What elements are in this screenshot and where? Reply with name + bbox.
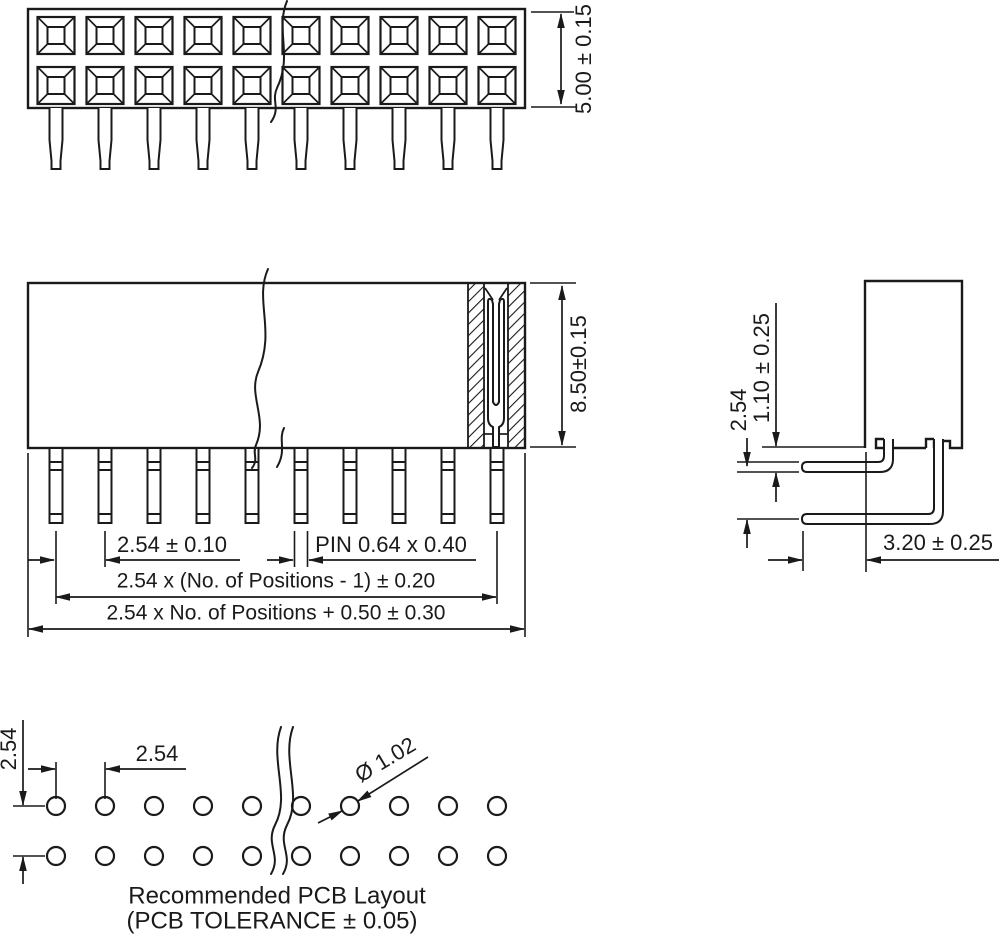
dim-tail-length-label: 3.20 ± 0.25: [883, 530, 993, 555]
dim-pin-size-label: PIN 0.64 x 0.40: [315, 532, 467, 557]
dim-pcb-col-pitch-label: 2.54: [136, 741, 179, 766]
dim-body-height-label: 5.00 ± 0.15: [571, 4, 596, 114]
side-view-dimensions: 2.54 1.10 ± 0.25 3.20 ± 0.25: [726, 303, 999, 572]
pcb-break-line-2: [283, 727, 293, 874]
side-view: 2.54 1.10 ± 0.25 3.20 ± 0.25: [726, 281, 999, 572]
front-view-pins: [50, 448, 504, 523]
dim-hole-diameter-label: Ø 1.02: [350, 732, 419, 787]
top-view: 5.00 ± 0.15: [28, 1, 596, 169]
side-view-body: [865, 281, 962, 448]
top-view-height-dimension: 5.00 ± 0.15: [531, 4, 596, 114]
dim-pcb-row-pitch-label: 2.54: [0, 728, 21, 771]
pcb-hole-diameter-dimension: Ø 1.02: [318, 732, 428, 823]
front-view-section: [468, 283, 525, 448]
connector-drawing-svg: 5.00 ± 0.15 8.50±0.15: [0, 0, 1000, 937]
pcb-layout: 2.54 2.54 Ø 1.02 Recommended PCB Layout …: [0, 720, 506, 934]
side-view-pin-upper: [802, 439, 893, 472]
dim-span-centers-label: 2.54 x (No. of Positions - 1) ± 0.20: [117, 570, 436, 593]
technical-drawing-page: 5.00 ± 0.15 8.50±0.15: [0, 0, 1000, 937]
section-wall-right: [508, 283, 525, 448]
side-view-pin-lower: [802, 439, 943, 524]
top-view-pins: [50, 108, 504, 169]
pcb-tolerance-note: (PCB TOLERANCE ± 0.05): [126, 907, 417, 934]
front-view-break-line: [252, 269, 268, 468]
dim-row-pitch-label: 2.54: [726, 389, 751, 432]
dim-pitch-label: 2.54 ± 0.10: [117, 532, 227, 557]
front-view-height-dimension: 8.50±0.15: [530, 283, 591, 447]
pcb-layout-caption: Recommended PCB Layout: [128, 882, 426, 909]
pcb-col-pitch-dimension: 2.54: [28, 741, 186, 799]
section-contact: [488, 299, 504, 447]
pcb-holes: [47, 797, 506, 865]
pcb-break-line-1: [271, 727, 281, 874]
pcb-row-pitch-dimension: 2.54: [0, 720, 45, 884]
dim-span-body-label: 2.54 x No. of Positions + 0.50 ± 0.30: [107, 602, 446, 625]
section-wall-left: [468, 283, 484, 448]
dim-pin-offset-label: 1.10 ± 0.25: [749, 313, 774, 423]
dim-insulator-height-label: 8.50±0.15: [566, 315, 591, 413]
front-view-body: [28, 283, 525, 448]
front-view: 8.50±0.15 2.54 ± 0.10 PIN 0.64 x 0.40 2.…: [28, 269, 591, 637]
